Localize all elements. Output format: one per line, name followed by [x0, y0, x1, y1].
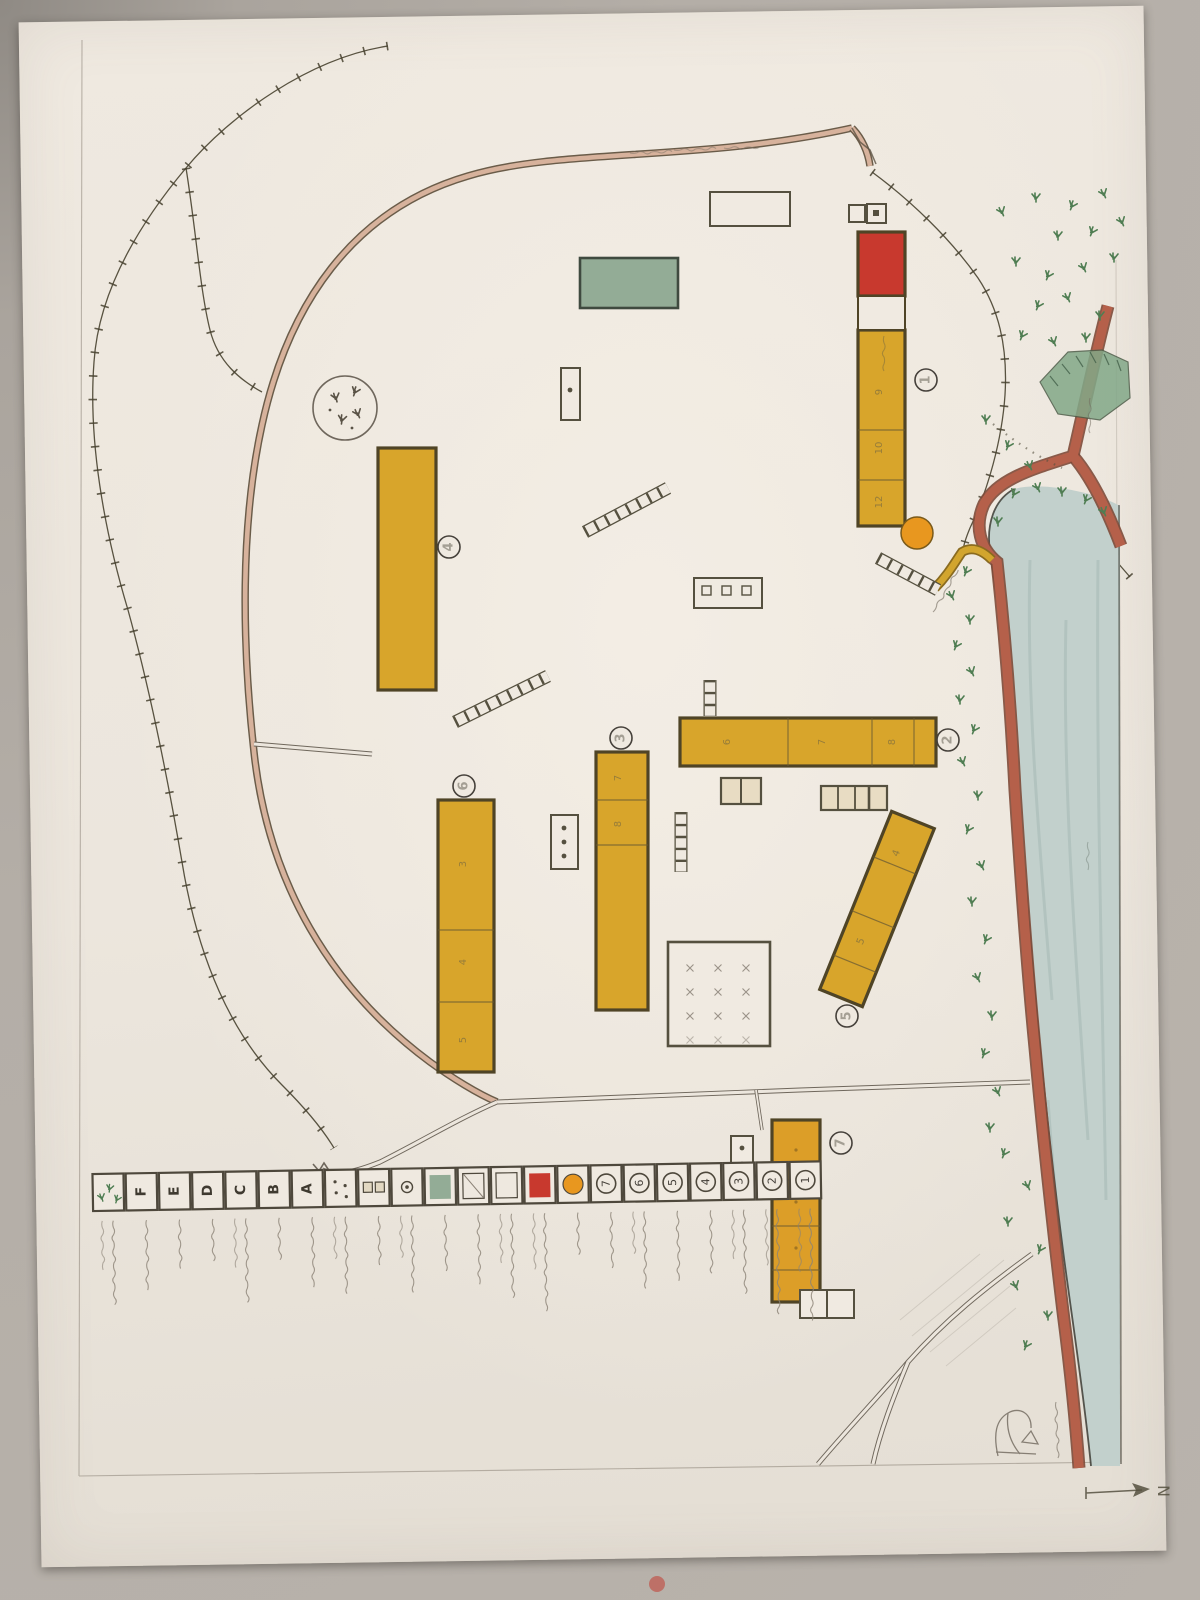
legend-desc-handwriting — [278, 1218, 282, 1260]
crop-mark — [1067, 200, 1078, 211]
legend-desc-handwriting — [742, 1210, 747, 1294]
legend-item-13 — [391, 1168, 424, 1293]
map-annotation — [1054, 1402, 1059, 1458]
room-number: 9 — [874, 389, 885, 395]
legend-symbol: B — [266, 1184, 282, 1195]
building-5-label: 5 — [836, 1005, 858, 1027]
crop-mark — [1054, 231, 1062, 240]
svg-text:6: 6 — [457, 781, 472, 790]
legend-item-15 — [325, 1169, 358, 1294]
legend-desc-handwriting — [676, 1211, 680, 1281]
empty-plot — [710, 192, 790, 226]
legend-desc-handwriting — [178, 1220, 182, 1269]
crop-mark — [1033, 300, 1044, 311]
legend-desc-handwriting — [610, 1212, 614, 1268]
legend-desc-handwriting — [410, 1215, 415, 1292]
building-6-label: 6 — [453, 775, 475, 797]
legend-desc-handwriting — [477, 1214, 481, 1284]
crop-mark — [1021, 1340, 1032, 1351]
handwriting-squiggle — [233, 1219, 237, 1268]
field-grid — [668, 942, 770, 1046]
building-4-label: 4 — [438, 536, 460, 558]
legend-symbol: C — [233, 1185, 249, 1196]
legend-item-10 — [491, 1167, 524, 1299]
crop-mark — [1062, 292, 1073, 303]
crop-mark — [1022, 1180, 1033, 1191]
legend-desc-handwriting — [211, 1219, 215, 1261]
room-number: 8 — [613, 821, 624, 827]
handwriting-squiggle — [1054, 1402, 1059, 1458]
legend-symbol: A — [299, 1183, 315, 1194]
legend-item-11 — [458, 1167, 491, 1285]
legend-item-6: 6 — [624, 1164, 657, 1289]
legend-desc-handwriting — [244, 1218, 249, 1302]
building-3 — [596, 752, 648, 1010]
legend-symbol: 1 — [799, 1177, 812, 1184]
crop-mark — [1048, 336, 1059, 347]
handwriting-squiggle — [499, 1214, 503, 1263]
garden-symbol — [430, 1175, 451, 1199]
garden-plot — [580, 258, 678, 308]
north-arrow: N — [1086, 1483, 1174, 1499]
legend-desc-handwriting — [311, 1217, 315, 1287]
legend-item-5: 5 — [657, 1164, 690, 1282]
crop-mark — [1082, 333, 1090, 342]
crop-mark — [986, 1123, 994, 1132]
room-number: 6 — [722, 739, 733, 745]
room-number: 10 — [874, 442, 885, 455]
room-number: 12 — [874, 496, 885, 509]
stream-road — [818, 1254, 1032, 1464]
crop-mark — [1116, 216, 1127, 227]
crop-mark — [969, 724, 980, 735]
legend-item-17: B — [258, 1171, 291, 1261]
legend-desc-handwriting — [444, 1215, 448, 1271]
crop-mark — [968, 897, 976, 906]
svg-text:1: 1 — [919, 375, 934, 384]
compound-wall — [245, 128, 876, 1102]
legend-symbol: 6 — [633, 1179, 646, 1186]
legend-symbol: E — [167, 1186, 183, 1196]
svg-text:2: 2 — [941, 735, 956, 744]
legend-item-21: F — [126, 1173, 159, 1291]
well — [901, 517, 933, 549]
crop-mark — [966, 666, 977, 677]
legend-symbol: 3 — [732, 1178, 745, 1185]
crop-mark — [963, 824, 974, 835]
legend-item-7: 7 — [590, 1165, 623, 1269]
legend-symbol: F — [133, 1187, 149, 1197]
building-2-label: 2 — [937, 729, 959, 751]
room-number: 7 — [613, 775, 624, 781]
crop-mark — [1044, 1311, 1052, 1320]
crop-mark — [1098, 188, 1109, 199]
crop-mark — [981, 934, 992, 945]
north-label: N — [1155, 1485, 1174, 1497]
legend-desc-handwriting — [543, 1213, 548, 1311]
building-3-label: 3 — [610, 727, 632, 749]
legend-item-19: D — [192, 1172, 225, 1262]
building-6 — [438, 800, 494, 1072]
crop-mark — [1035, 1244, 1046, 1255]
crop-mark — [999, 1148, 1010, 1159]
legend-symbol: D — [200, 1185, 216, 1197]
crop-mark — [1032, 193, 1040, 202]
legend-desc-handwriting — [344, 1217, 349, 1294]
legend-item-8 — [557, 1165, 590, 1255]
crop-mark — [1003, 440, 1014, 451]
svg-text:7: 7 — [834, 1138, 849, 1147]
legend-item-9 — [524, 1166, 558, 1312]
crop-mark — [992, 1086, 1003, 1097]
crop-mark — [982, 415, 990, 424]
building-1 — [858, 232, 905, 526]
crop-mark — [957, 756, 968, 767]
handwriting-squiggle — [731, 1210, 735, 1259]
handwriting-squiggle — [101, 1221, 105, 1270]
legend-desc-handwriting — [112, 1221, 117, 1305]
legend-desc-handwriting — [643, 1211, 648, 1288]
crop-mark — [979, 1048, 990, 1059]
legend-desc-handwriting — [377, 1216, 381, 1265]
legend-item-22 — [92, 1174, 125, 1306]
handwriting-squiggle — [333, 1217, 337, 1259]
crop-mark — [1087, 226, 1098, 237]
crop-mark — [1010, 1280, 1021, 1291]
legend-symbol: 7 — [600, 1180, 613, 1187]
building-7-label: 7 — [830, 1132, 852, 1154]
crop-mark — [996, 206, 1007, 217]
legend-desc-handwriting — [709, 1210, 713, 1273]
shrine-sketch — [996, 1410, 1038, 1456]
svg-text:3: 3 — [614, 733, 629, 742]
legend-desc-handwriting — [145, 1220, 149, 1290]
crop-mark — [1110, 253, 1118, 262]
building-1-label: 1 — [915, 369, 937, 391]
legend-item-3: 3 — [723, 1163, 756, 1295]
crop-mark — [1043, 270, 1054, 281]
crop-mark — [946, 590, 957, 601]
platform-symbol — [375, 1182, 384, 1192]
crop-mark — [956, 695, 964, 704]
room-number: 5 — [458, 1037, 469, 1043]
plot-symbol — [496, 1173, 517, 1198]
building-4 — [378, 448, 436, 690]
crop-mark — [961, 566, 972, 577]
legend-symbol: 2 — [766, 1177, 779, 1184]
crop-mark — [966, 615, 974, 624]
legend-symbol: 5 — [666, 1179, 679, 1186]
crop-mark — [1012, 257, 1020, 266]
legend-item-16: A — [292, 1170, 325, 1288]
handwriting-squiggle — [765, 1209, 769, 1265]
legend-desc-handwriting — [576, 1213, 580, 1255]
legend-item-14 — [358, 1169, 391, 1266]
crop-mark — [972, 972, 983, 983]
legend-item-20: E — [159, 1172, 192, 1269]
crop-mark — [976, 860, 987, 871]
stepped-paths — [455, 488, 938, 872]
building-5 — [820, 811, 935, 1006]
room-number: 3 — [458, 861, 469, 867]
tank-symbol — [529, 1173, 550, 1197]
crop-mark — [974, 791, 982, 800]
crop-mark — [1004, 1217, 1012, 1226]
hand-drawn-map-drawing: 1 2 3 4 5 6 7 9 10 12 6 7 8 7 8 4 5 3 4 … — [0, 0, 1200, 1600]
crop-mark — [1078, 262, 1089, 273]
handwriting-squiggle — [399, 1216, 403, 1258]
tree-grove — [313, 376, 377, 440]
legend-item-12 — [424, 1168, 457, 1272]
room-number: 7 — [817, 739, 828, 745]
legend: 1234567ABCDEF — [92, 1161, 823, 1333]
handwriting-squiggle — [532, 1213, 536, 1269]
handwriting-squiggle — [632, 1212, 636, 1254]
crop-mark — [951, 640, 962, 651]
svg-text:5: 5 — [840, 1011, 855, 1020]
red-stain — [649, 1576, 665, 1592]
legend-item-18: C — [225, 1171, 258, 1303]
room-number: 4 — [458, 959, 469, 965]
legend-symbol: 4 — [699, 1178, 712, 1185]
legend-item-4: 4 — [690, 1163, 723, 1274]
svg-text:4: 4 — [442, 542, 457, 551]
legend-desc-handwriting — [510, 1214, 515, 1298]
well-symbol — [563, 1174, 583, 1194]
crop-mark — [988, 1011, 996, 1020]
photo-of-hand-drawn-school-map: { "photo": { "background_color": "#b4aea… — [0, 0, 1200, 1600]
legend-box — [325, 1169, 357, 1207]
crop-mark — [1017, 330, 1028, 341]
legend-box — [92, 1174, 124, 1212]
room-number: 8 — [887, 739, 898, 745]
